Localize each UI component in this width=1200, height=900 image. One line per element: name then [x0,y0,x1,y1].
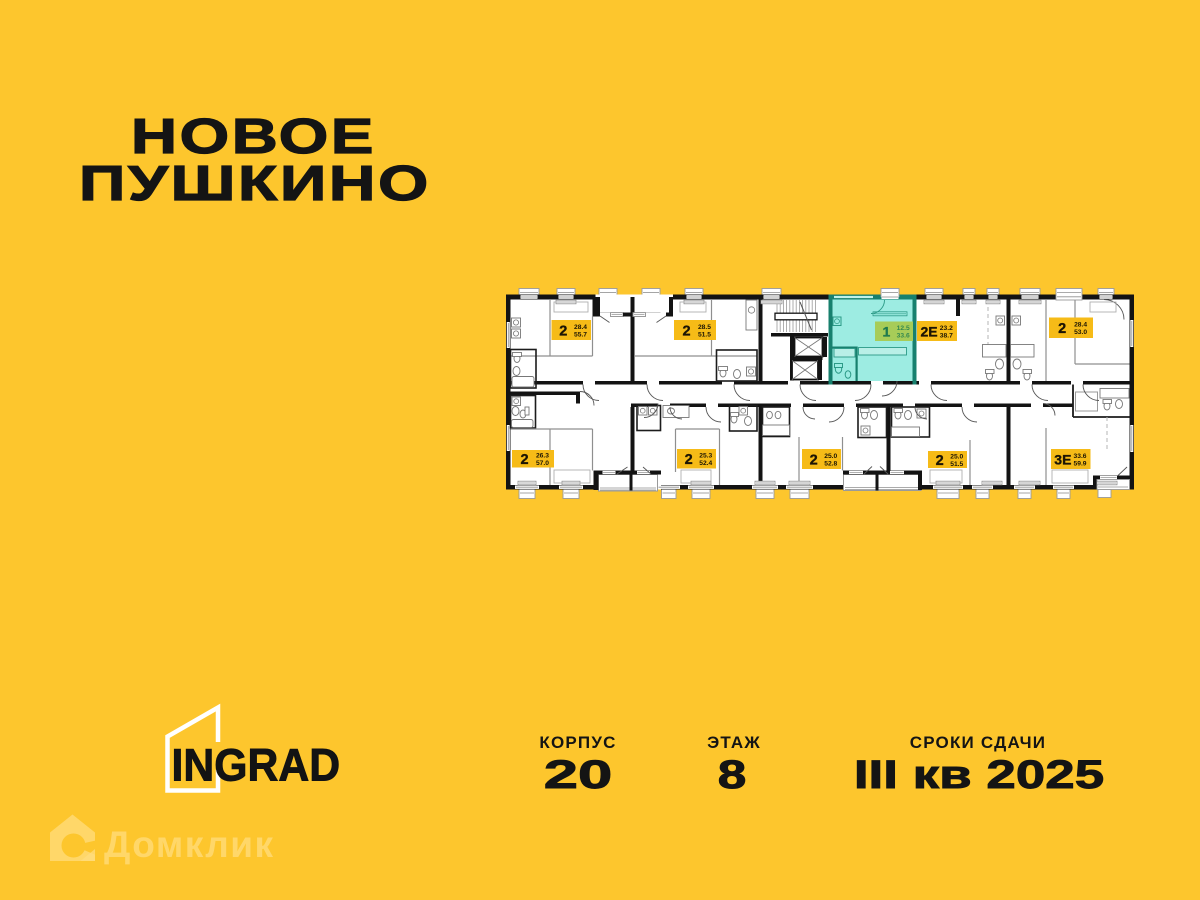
svg-text:28.4: 28.4 [574,324,587,331]
svg-text:2: 2 [521,452,529,468]
svg-text:59.9: 59.9 [1074,460,1087,467]
svg-text:2: 2 [683,323,691,339]
svg-text:2: 2 [1058,321,1066,337]
svg-text:28.4: 28.4 [1074,322,1087,329]
svg-text:33.6: 33.6 [1074,453,1087,460]
svg-text:25.0: 25.0 [824,453,837,460]
svg-text:2: 2 [810,452,818,468]
svg-text:1: 1 [883,324,891,340]
svg-text:12.5: 12.5 [897,325,910,332]
svg-text:53.0: 53.0 [1074,329,1087,336]
svg-text:38.7: 38.7 [940,332,953,339]
svg-text:2: 2 [559,323,567,339]
svg-text:23.2: 23.2 [940,325,953,332]
svg-text:51.5: 51.5 [698,331,711,338]
svg-text:26.3: 26.3 [536,453,549,460]
svg-text:Домклик: Домклик [104,824,275,865]
svg-text:33.6: 33.6 [897,333,910,340]
svg-text:52.4: 52.4 [699,460,712,467]
svg-text:52.8: 52.8 [824,460,837,467]
svg-text:INGRAD: INGRAD [172,741,341,791]
svg-text:3Е: 3Е [1054,451,1071,467]
svg-text:2: 2 [685,452,693,468]
svg-text:57.0: 57.0 [536,460,549,467]
svg-text:2Е: 2Е [920,323,937,339]
svg-text:2: 2 [936,453,944,469]
svg-text:51.5: 51.5 [950,461,963,468]
svg-text:25.0: 25.0 [950,453,963,460]
svg-text:28.5: 28.5 [698,324,711,331]
svg-text:55.7: 55.7 [574,331,587,338]
svg-text:25.3: 25.3 [699,453,712,460]
